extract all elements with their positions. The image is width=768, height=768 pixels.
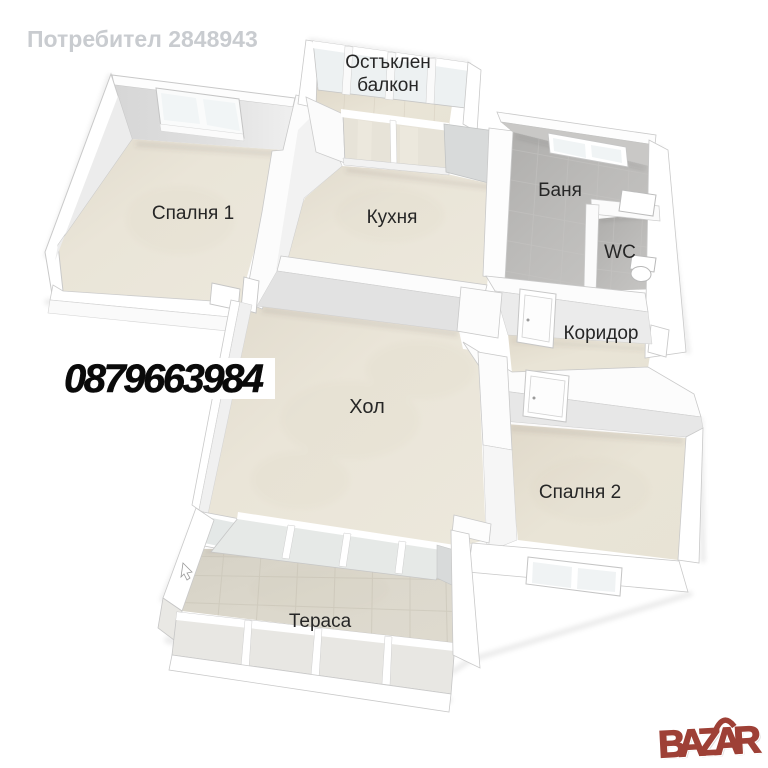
- svg-text:Хол: Хол: [349, 396, 384, 418]
- svg-text:Спалня 1: Спалня 1: [152, 203, 234, 224]
- svg-text:Потребител 2848943: Потребител 2848943: [27, 26, 258, 52]
- svg-text:Спалня 2: Спалня 2: [539, 482, 621, 503]
- svg-text:WC: WC: [604, 242, 636, 263]
- svg-text:Коридор: Коридор: [563, 323, 638, 344]
- svg-text:Тераса: Тераса: [289, 611, 352, 632]
- svg-text:BAZAR: BAZAR: [657, 719, 762, 766]
- svg-text:балкон: балкон: [357, 75, 419, 96]
- svg-text:Остъклен: Остъклен: [345, 52, 431, 73]
- svg-text:Баня: Баня: [538, 180, 582, 201]
- svg-text:Кухня: Кухня: [367, 207, 418, 228]
- svg-text:0879663984: 0879663984: [64, 357, 264, 401]
